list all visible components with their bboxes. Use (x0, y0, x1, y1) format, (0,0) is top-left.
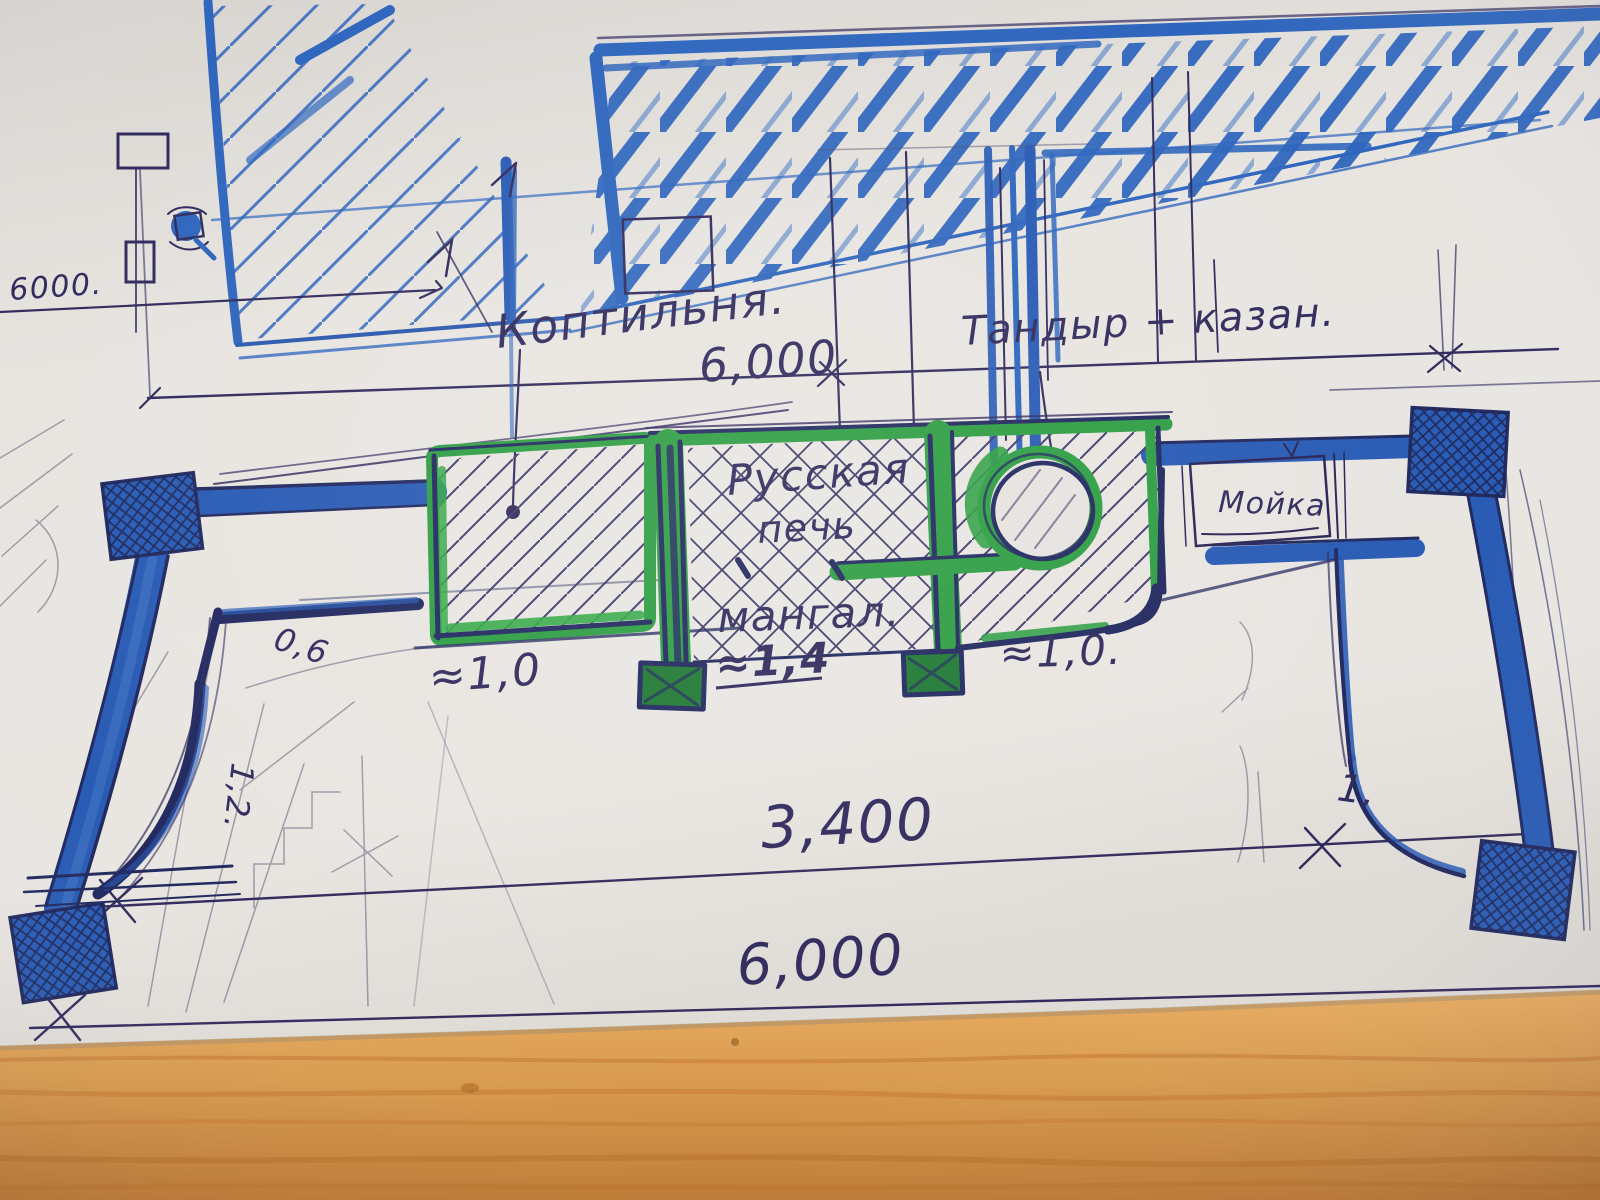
dim-far-left: 6000. (8, 267, 104, 308)
pillar-top-right (1408, 408, 1508, 497)
dim-bottom-width: 6,000 (734, 922, 906, 999)
dim-left-depth: 1,2. (216, 761, 262, 832)
photo-of-sketch: 6000. Коптильня. 6,000 Тандыр + казан. Р… (0, 0, 1600, 1200)
pillar-bottom-left (10, 903, 116, 1003)
dim-top-width: 6,000 (697, 329, 840, 393)
dim-inner-width: 3,400 (759, 785, 936, 862)
label-sink: Мойка (1218, 485, 1327, 524)
dim-tandoor-width: ≈1,0. (999, 625, 1123, 678)
pillar-top-left (102, 473, 203, 560)
pillar-bottom-right (1471, 841, 1575, 940)
label-russian-stove-2: печь (756, 503, 857, 552)
dim-right-depth: 1, (1335, 765, 1380, 814)
smokehouse-box-hatch (432, 444, 648, 638)
dim-smokehouse-width: ≈1,0 (427, 644, 543, 703)
wood-knot (461, 1083, 479, 1093)
